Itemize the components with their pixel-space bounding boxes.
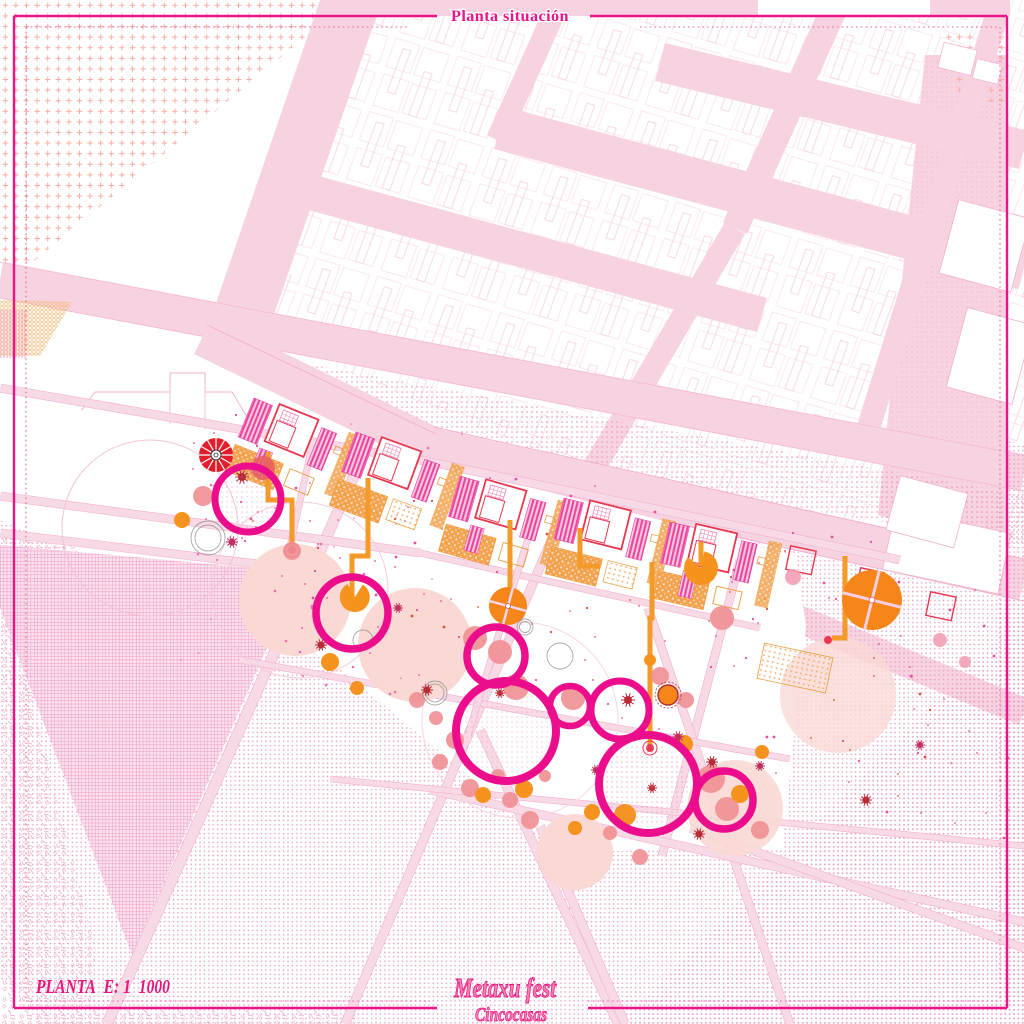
svg-text:PLANTA E: 1 1000: PLANTA E: 1 1000 [35, 977, 170, 998]
svg-text:Planta situación: Planta situación [451, 8, 569, 25]
svg-text:Cincocasas: Cincocasas [475, 1004, 547, 1024]
svg-text:Metaxu fest: Metaxu fest [453, 973, 557, 1003]
